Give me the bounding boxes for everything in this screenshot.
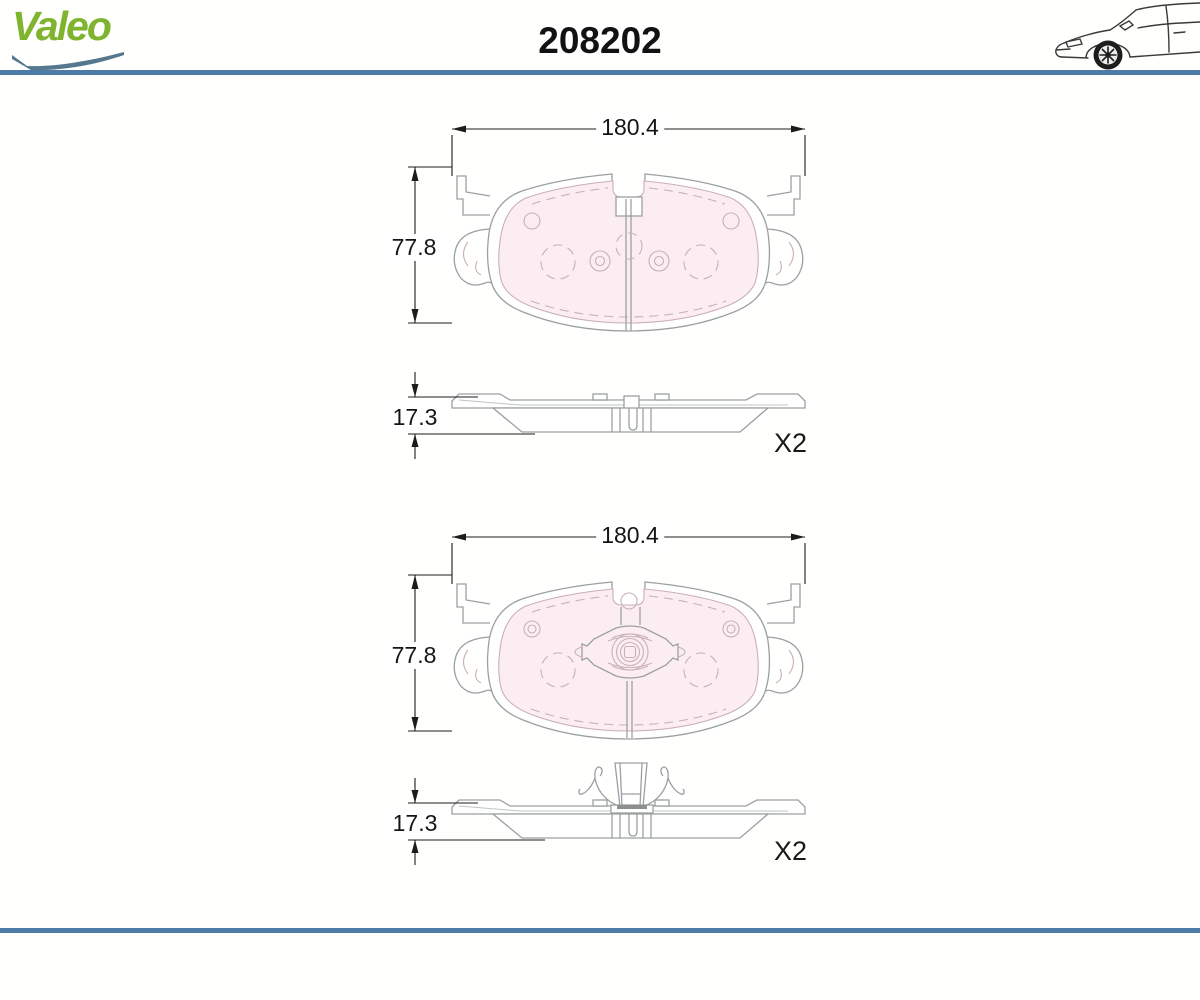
catalog-page: Valeo 208202 (0, 0, 1200, 1000)
technical-drawing-canvas (0, 0, 1200, 1000)
thickness-dim-label-1: 17.3 (388, 404, 443, 431)
pad-side-view (452, 394, 805, 432)
width-dim-label-2: 180.4 (596, 522, 664, 549)
thickness-dim-label-2: 17.3 (388, 810, 443, 837)
quantity-label-2: X2 (774, 836, 807, 867)
height-dim-label-1: 77.8 (387, 234, 442, 261)
width-dim-label-1: 180.4 (596, 114, 664, 141)
quantity-label-1: X2 (774, 428, 807, 459)
footer-rule (0, 928, 1200, 933)
height-dim-label-2: 77.8 (387, 642, 442, 669)
